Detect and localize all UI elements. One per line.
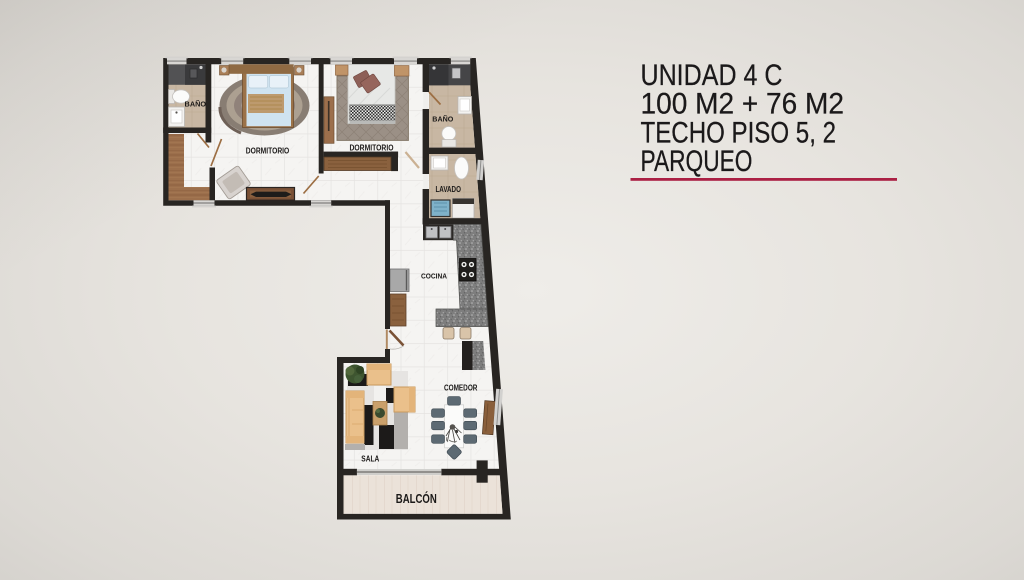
svg-text:PARQUEO: PARQUEO: [641, 145, 753, 178]
svg-text:BAÑO: BAÑO: [185, 100, 207, 109]
svg-text:BALCÓN: BALCÓN: [396, 491, 437, 506]
svg-text:BAÑO: BAÑO: [432, 115, 453, 124]
svg-text:DORMITORIO: DORMITORIO: [246, 146, 290, 156]
svg-text:COMEDOR: COMEDOR: [444, 383, 478, 393]
svg-text:SALA: SALA: [361, 455, 379, 464]
svg-text:DORMITORIO: DORMITORIO: [350, 143, 394, 153]
svg-text:COCINA: COCINA: [421, 272, 448, 281]
svg-text:LAVADO: LAVADO: [435, 185, 461, 194]
